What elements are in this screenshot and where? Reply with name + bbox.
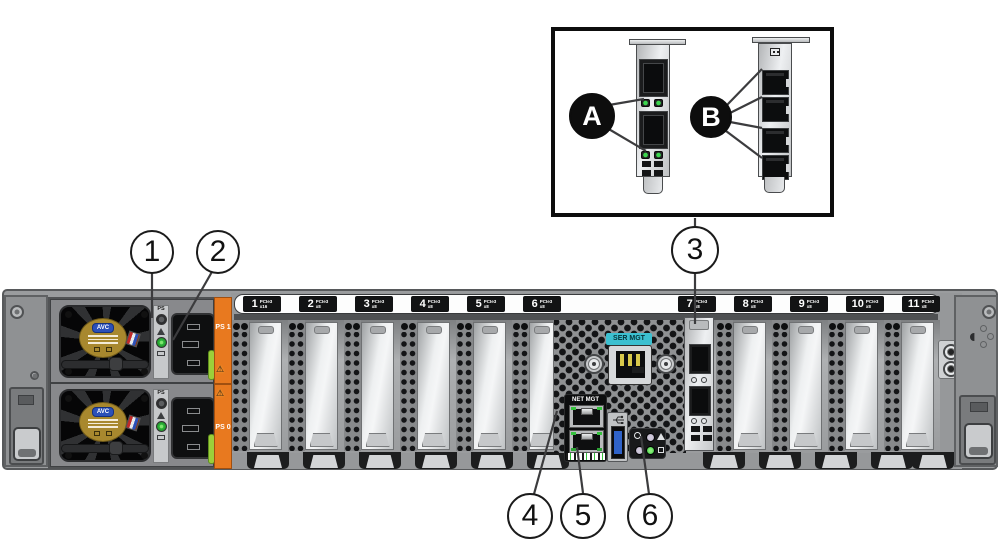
filler-thumb-notch — [314, 326, 330, 334]
pcie-filler-panel — [473, 322, 506, 450]
pcie-slot-label-1: 1PCIe3x16 — [243, 296, 281, 312]
divider-screw-dots — [716, 322, 733, 332]
pcie-filler-panel — [417, 322, 450, 450]
latch-clip — [310, 455, 338, 468]
callout-6: 6 — [627, 493, 673, 539]
latch-clip — [254, 455, 282, 468]
latch-clip — [878, 455, 906, 468]
psu-id-strip: PS 1 ⚠ ⚠ PS 0 — [214, 297, 232, 469]
pcie-slot-divider — [716, 320, 733, 451]
slot-label-strip — [234, 294, 940, 314]
filler-bottom-recess — [530, 433, 554, 447]
link-leds — [571, 448, 576, 451]
divider-screw-dots — [884, 322, 901, 332]
divider-screw-dots — [828, 322, 845, 332]
pcie-filler-panel — [901, 322, 934, 450]
fault-led — [646, 433, 655, 442]
power-ok-icon — [658, 447, 664, 453]
net-mgt-label: NET MGT — [565, 395, 606, 405]
card-b-port-1 — [762, 70, 789, 95]
callout-3: 3 — [671, 226, 719, 274]
callout-1: 1 — [130, 230, 174, 274]
filler-thumb-notch — [742, 326, 758, 334]
slot7-port-2 — [689, 386, 711, 416]
filler-thumb-notch — [482, 326, 498, 334]
callout-b: B — [690, 96, 732, 138]
keyhole-cluster — [970, 333, 978, 341]
card-b-bracket — [758, 43, 792, 177]
slot7-vents — [691, 426, 712, 441]
filler-thumb-notch — [370, 326, 386, 334]
chassis-bottom-latch — [759, 452, 801, 469]
latch-clip — [534, 455, 562, 468]
filler-bottom-recess — [794, 433, 818, 447]
callout-a: A — [569, 93, 615, 139]
pcie-slot-divider — [512, 320, 529, 451]
pcie-slot-divider — [828, 320, 845, 451]
filler-thumb-notch — [798, 326, 814, 334]
filler-bottom-recess — [478, 433, 502, 447]
pcie-slot-divider — [288, 320, 305, 451]
small-hole — [30, 371, 39, 380]
rack-screw-hole — [982, 305, 996, 319]
divider-screw-dots — [772, 322, 789, 332]
pcie-slot-label-5: 5PCIe3x8 — [467, 296, 505, 312]
slot7-port-1 — [689, 344, 711, 374]
pcie-filler-panel — [305, 322, 338, 450]
net-mgt-panel: NET MGT — [564, 394, 607, 462]
server-chassis-rear: AVC PS — [2, 289, 998, 470]
card-b-network-icon — [770, 48, 780, 56]
card-b-port-3 — [762, 128, 789, 153]
chassis-bottom-latch — [527, 452, 569, 469]
pcie-slot-divider — [772, 320, 789, 451]
usb-port-panel — [607, 412, 628, 462]
host-ethernet-port — [569, 430, 604, 453]
slot7-port2-led — [701, 418, 707, 424]
warning-icon: ⚠ — [216, 388, 224, 398]
rear-panel-diagram: A B 1 2 3 4 5 6 AVC — [0, 0, 1000, 554]
pcie-slot-label-8: 8PCIe3x8 — [734, 296, 772, 312]
pcie-slot-label-6: 6PCIe3x8 — [523, 296, 561, 312]
locator-icon — [634, 432, 641, 439]
chassis-bottom-latch — [912, 452, 954, 469]
status-led-panel — [629, 428, 666, 459]
divider-screw-dots — [456, 322, 473, 332]
pcie-filler-panel — [361, 322, 394, 450]
filler-bottom-recess — [738, 433, 762, 447]
chassis-ear-left — [4, 295, 48, 467]
card-a-port2-led-1 — [641, 151, 650, 159]
pcie-slot-label-4: 4PCIe3x8 — [411, 296, 449, 312]
ser-mgt-port — [608, 345, 652, 385]
card-a-port1-led-2 — [654, 99, 663, 107]
pcie-filler-panel — [249, 322, 282, 450]
chassis-bottom-latch — [871, 452, 913, 469]
warning-icon: ⚠ — [216, 364, 224, 374]
card-a-vents — [642, 161, 663, 176]
chassis-bottom-latch — [247, 452, 289, 469]
slot7-installed-card — [684, 317, 714, 451]
latch-clip — [766, 455, 794, 468]
chassis-bottom-latch — [303, 452, 345, 469]
panel-screw-right — [656, 354, 676, 374]
card-b-port-2 — [762, 97, 789, 122]
chassis-bottom-latch — [359, 452, 401, 469]
latch-clip — [478, 455, 506, 468]
card-a-port-2 — [639, 111, 668, 149]
callout-4: 4 — [507, 493, 553, 539]
card-a-port-1 — [639, 59, 668, 97]
filler-bottom-recess — [850, 433, 874, 447]
pcie-slot-divider — [456, 320, 473, 451]
card-b-bracket-notch — [764, 177, 785, 193]
filler-thumb-notch — [910, 326, 926, 334]
link-leds — [571, 432, 576, 435]
pcie-filler-panel — [789, 322, 822, 450]
divider-screw-dots — [232, 322, 249, 332]
slot7-port1-led — [701, 377, 707, 383]
pcie-filler-panel — [529, 322, 554, 450]
card-a-port1-led-1 — [641, 99, 650, 107]
filler-thumb-notch — [426, 326, 442, 334]
pcie-slot-label-2: 2PCIe3x8 — [299, 296, 337, 312]
chassis-ear-right — [954, 295, 998, 467]
ps1-label: PS 1 — [215, 324, 231, 332]
pcie-slot-area — [4, 291, 1000, 472]
pcie-slot-divider — [884, 320, 901, 451]
port-id-sticker — [566, 453, 605, 460]
pcie-slot-divider — [344, 320, 361, 451]
divider-screw-dots — [512, 322, 529, 332]
filler-bottom-recess — [422, 433, 446, 447]
latch-clip — [422, 455, 450, 468]
ps0-label: PS 0 — [215, 424, 231, 432]
filler-thumb-notch — [258, 326, 274, 334]
pcie-slot-label-7: 7PCIe3x8 — [678, 296, 716, 312]
card-a-port2-led-2 — [654, 151, 663, 159]
filler-bottom-recess — [366, 433, 390, 447]
card-a-bracket-notch — [643, 177, 663, 194]
net-mgt-port — [569, 405, 604, 428]
pcie-slot-divider — [400, 320, 417, 451]
rack-screw-hole — [10, 305, 24, 319]
slot7-port2-led — [691, 418, 697, 424]
latch-clip — [710, 455, 738, 468]
chassis-bottom-latch — [471, 452, 513, 469]
callout-5: 5 — [560, 493, 606, 539]
pcie-filler-panel — [733, 322, 766, 450]
divider-screw-dots — [344, 322, 361, 332]
link-leds — [571, 407, 576, 410]
panel-screw-left — [584, 354, 604, 374]
filler-thumb-notch — [854, 326, 870, 334]
filler-bottom-recess — [254, 433, 278, 447]
power-ok-led — [646, 446, 655, 455]
usb3-port — [611, 426, 625, 459]
pcie-slot-label-10: 10PCIe3x8 — [846, 296, 884, 312]
fault-warning-icon — [657, 433, 665, 440]
latch-clip — [919, 455, 947, 468]
filler-bottom-recess — [310, 433, 334, 447]
left-ear-latch — [9, 387, 44, 465]
chassis-bottom-latch — [415, 452, 457, 469]
pcie-filler-panel — [845, 322, 878, 450]
pcie-slot-label-11: 11PCIe3x8 — [902, 296, 940, 312]
chassis-bottom-latch — [703, 452, 745, 469]
chassis-bottom-latch — [815, 452, 857, 469]
latch-clip — [822, 455, 850, 468]
divider-screw-dots — [400, 322, 417, 332]
ser-mgt-label: SER MGT — [606, 333, 652, 345]
usb-icon — [612, 415, 625, 424]
right-ear-latch — [959, 395, 996, 465]
divider-screw-dots — [288, 322, 305, 332]
slot7-port1-led — [691, 377, 697, 383]
filler-bottom-recess — [906, 433, 930, 447]
pcie-slot-label-3: 3PCIe3x8 — [355, 296, 393, 312]
locator-button — [635, 446, 644, 455]
callout-2: 2 — [196, 230, 240, 274]
latch-clip — [366, 455, 394, 468]
pcie-slot-label-9: 9PCIe3x8 — [790, 296, 828, 312]
pcie-slot-divider — [232, 320, 249, 451]
filler-thumb-notch — [534, 326, 550, 334]
